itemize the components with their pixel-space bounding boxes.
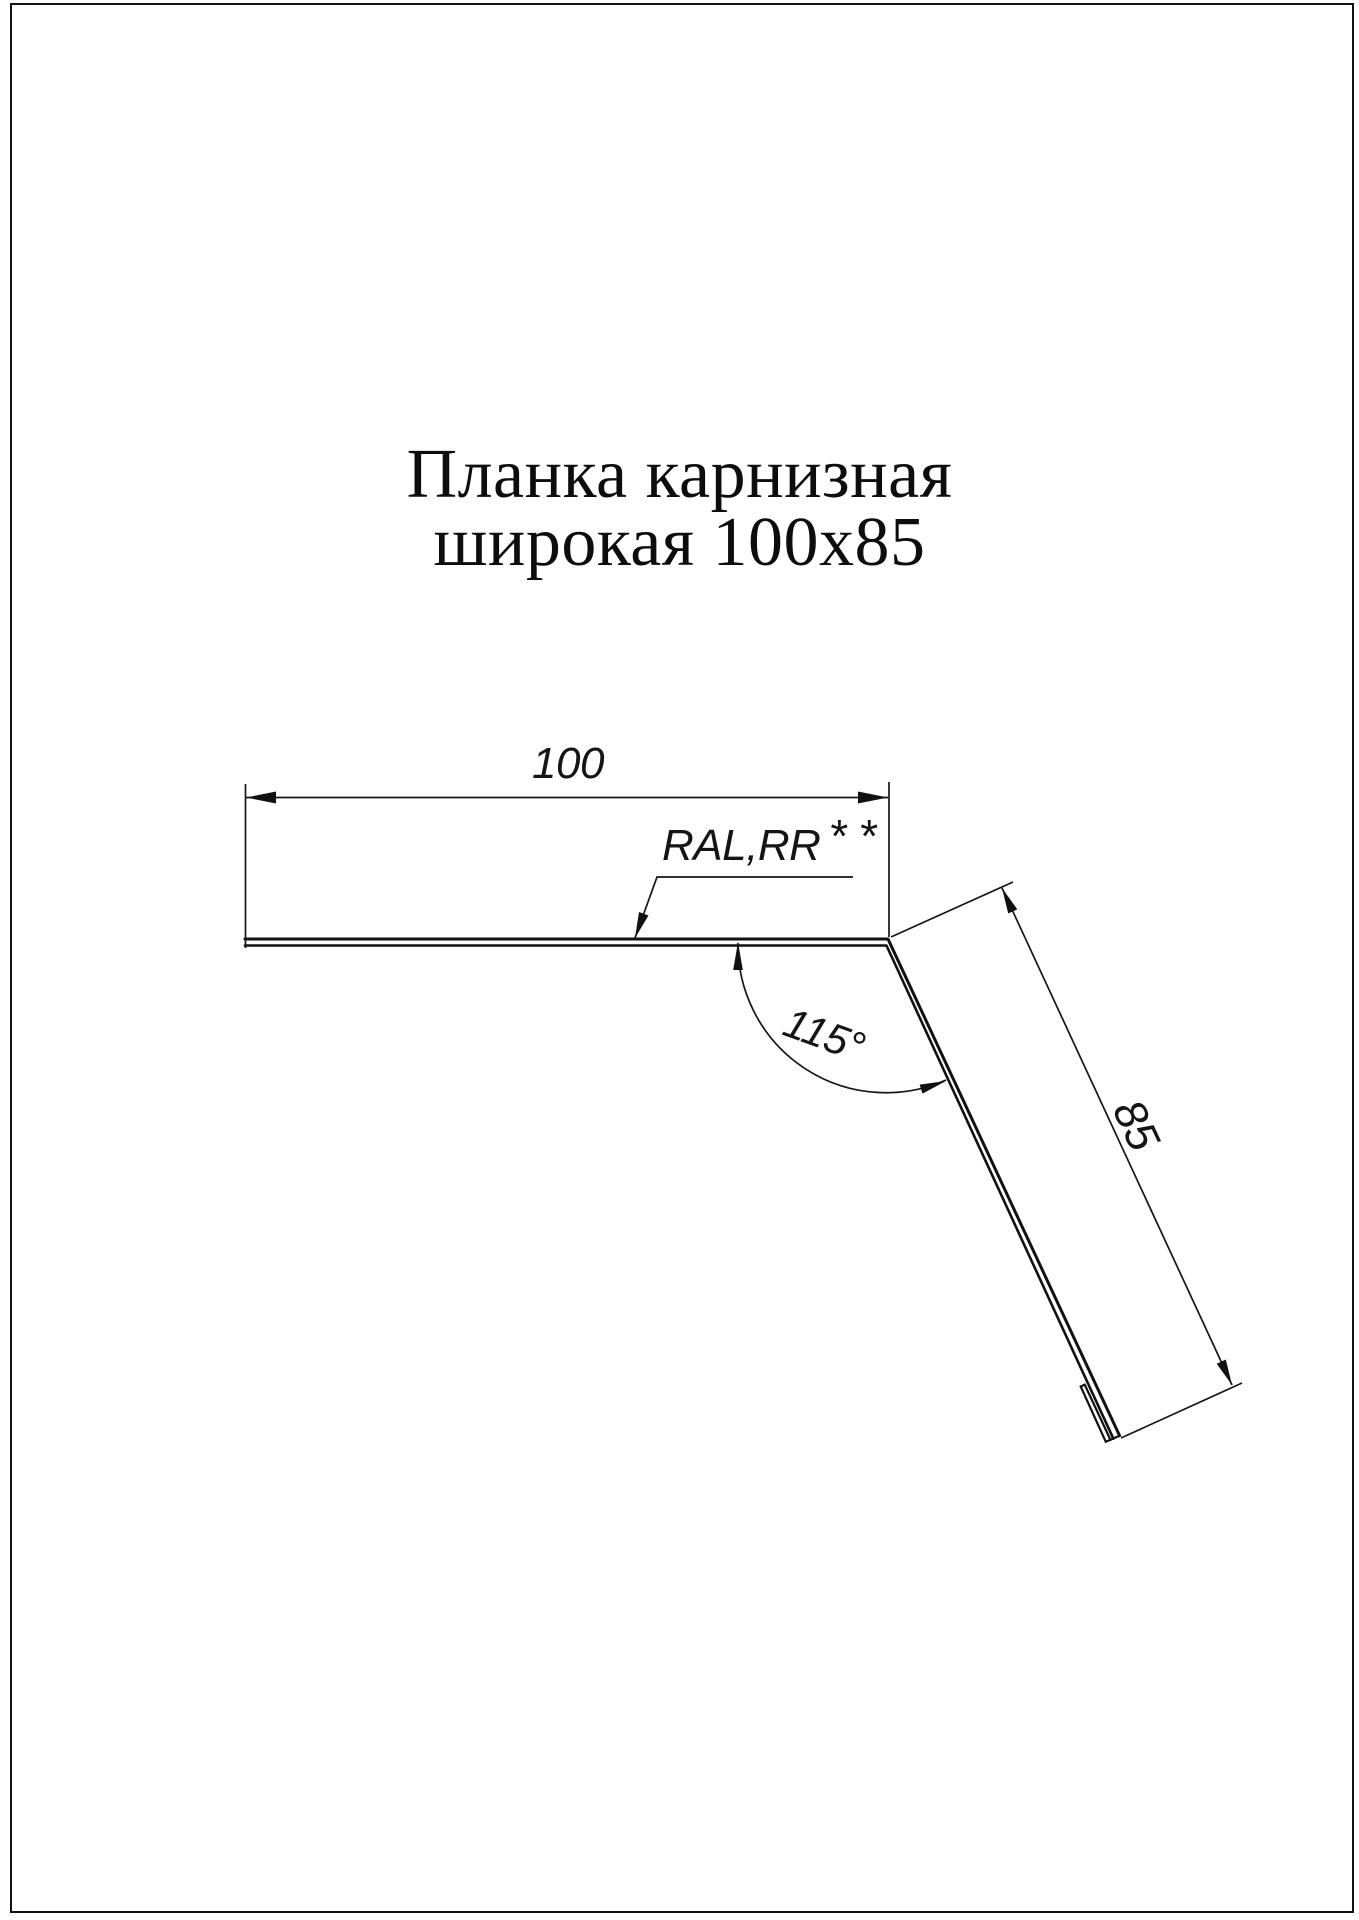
arrowheads	[246, 792, 1232, 1386]
plate-top-surface-line	[245, 939, 1120, 1436]
drawing-canvas	[0, 0, 1359, 1920]
ral-leader-arrow	[635, 912, 649, 938]
dim100-label: 100	[506, 742, 630, 786]
dim85-arrow-bottom	[1217, 1360, 1232, 1386]
dim85-extension-top	[891, 882, 1013, 937]
dim85-arrow-top	[1002, 888, 1017, 914]
plate-bottom-surface-line	[245, 946, 1113, 1439]
drawing-sheet: Планка карнизная широкая 100х85	[0, 0, 1359, 1920]
plate-profile	[245, 939, 1120, 1442]
coating-note-stars: **	[830, 814, 890, 858]
dim100-arrow-left	[246, 792, 276, 804]
dim100-arrow-right	[858, 792, 888, 804]
plate-hem-top-cap	[1081, 1385, 1085, 1387]
dim85-extension-bottom	[1121, 1383, 1242, 1438]
angle-arc-arrow-bottom	[920, 1081, 946, 1094]
plate-hem-outer-line	[1085, 1385, 1111, 1440]
coating-note: RAL,RR**	[662, 822, 890, 868]
ral-leader-line	[635, 877, 853, 938]
coating-note-text: RAL,RR	[662, 821, 820, 870]
dimension-lines	[246, 782, 1243, 1438]
